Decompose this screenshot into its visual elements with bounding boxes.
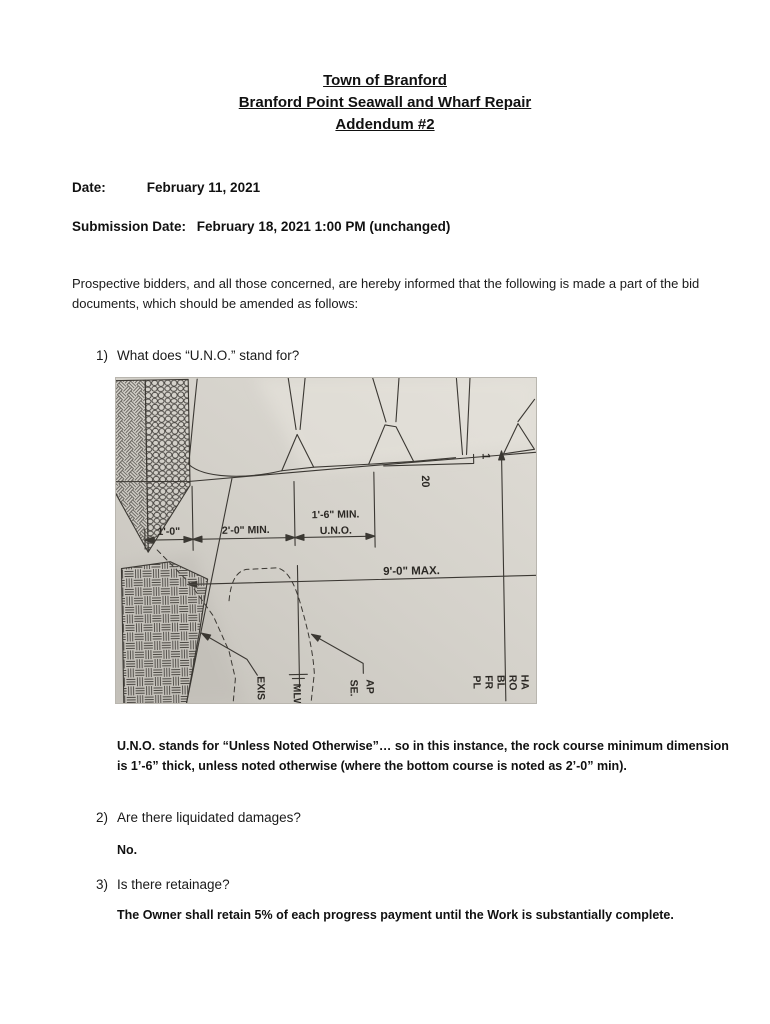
answer-1: U.N.O. stands for “Unless Noted Otherwis… (117, 736, 737, 776)
slope-rise-label: 1 (480, 453, 492, 459)
dim-label-9-0-max: 9'-0" MAX. (383, 565, 440, 578)
date-row: Date: February 11, 2021 (72, 180, 770, 195)
question-2-text: Are there liquidated damages? (117, 809, 301, 826)
date-value: February 11, 2021 (147, 180, 260, 195)
question-3: 3) Is there retainage? (96, 876, 770, 893)
dim-label-2-0-min: 2'-0" MIN. (222, 524, 270, 537)
cut-label-exis: EXIS (254, 676, 266, 700)
cut-label-se: SE. (347, 679, 359, 696)
submission-date-label: Submission Date: (72, 219, 186, 234)
answer-3: The Owner shall retain 5% of each progre… (117, 905, 737, 925)
submission-date-value: February 18, 2021 1:00 PM (unchanged) (197, 219, 451, 234)
cut-label-ha: HA (518, 674, 530, 690)
question-2-number: 2) (96, 809, 117, 826)
answer-2: No. (117, 840, 737, 860)
title-line-2: Branford Point Seawall and Wharf Repair (0, 92, 770, 114)
question-2: 2) Are there liquidated damages? (96, 809, 770, 826)
dim-label-1-0: 1'-0" (157, 526, 180, 538)
document-title-block: Town of Branford Branford Point Seawall … (0, 0, 770, 136)
intro-paragraph: Prospective bidders, and all those conce… (72, 274, 707, 314)
title-line-3: Addendum #2 (0, 114, 770, 136)
question-1-number: 1) (96, 347, 117, 364)
cut-label-ro: RO (506, 675, 518, 691)
dim-label-uno: U.N.O. (320, 525, 352, 538)
question-1-text: What does “U.N.O.” stand for? (117, 347, 299, 364)
date-label: Date: (72, 180, 143, 195)
submission-date-row: Submission Date: February 18, 2021 1:00 … (72, 219, 770, 234)
document-page: Town of Branford Branford Point Seawall … (0, 0, 770, 1024)
cut-label-bl: BL (494, 675, 506, 690)
question-3-number: 3) (96, 876, 117, 893)
meta-block: Date: February 11, 2021 Submission Date:… (72, 180, 770, 234)
cut-label-pl: PL (470, 675, 482, 689)
cut-label-mlw: MLW (291, 683, 303, 704)
seawall-cross-section-drawing: 1'-0" 2'-0" MIN. 1'-6" MIN. U.N.O. 9'-0"… (115, 377, 537, 704)
title-line-1: Town of Branford (0, 70, 770, 92)
dim-label-1-6-min: 1'-6" MIN. (312, 508, 360, 521)
slope-run-label: 20 (419, 475, 431, 487)
drawing-canvas: 1'-0" 2'-0" MIN. 1'-6" MIN. U.N.O. 9'-0"… (115, 377, 537, 704)
question-3-text: Is there retainage? (117, 876, 230, 893)
question-1: 1) What does “U.N.O.” stand for? (96, 347, 770, 364)
cut-label-fr: FR (482, 675, 494, 690)
cut-label-ap: AP (363, 679, 375, 694)
